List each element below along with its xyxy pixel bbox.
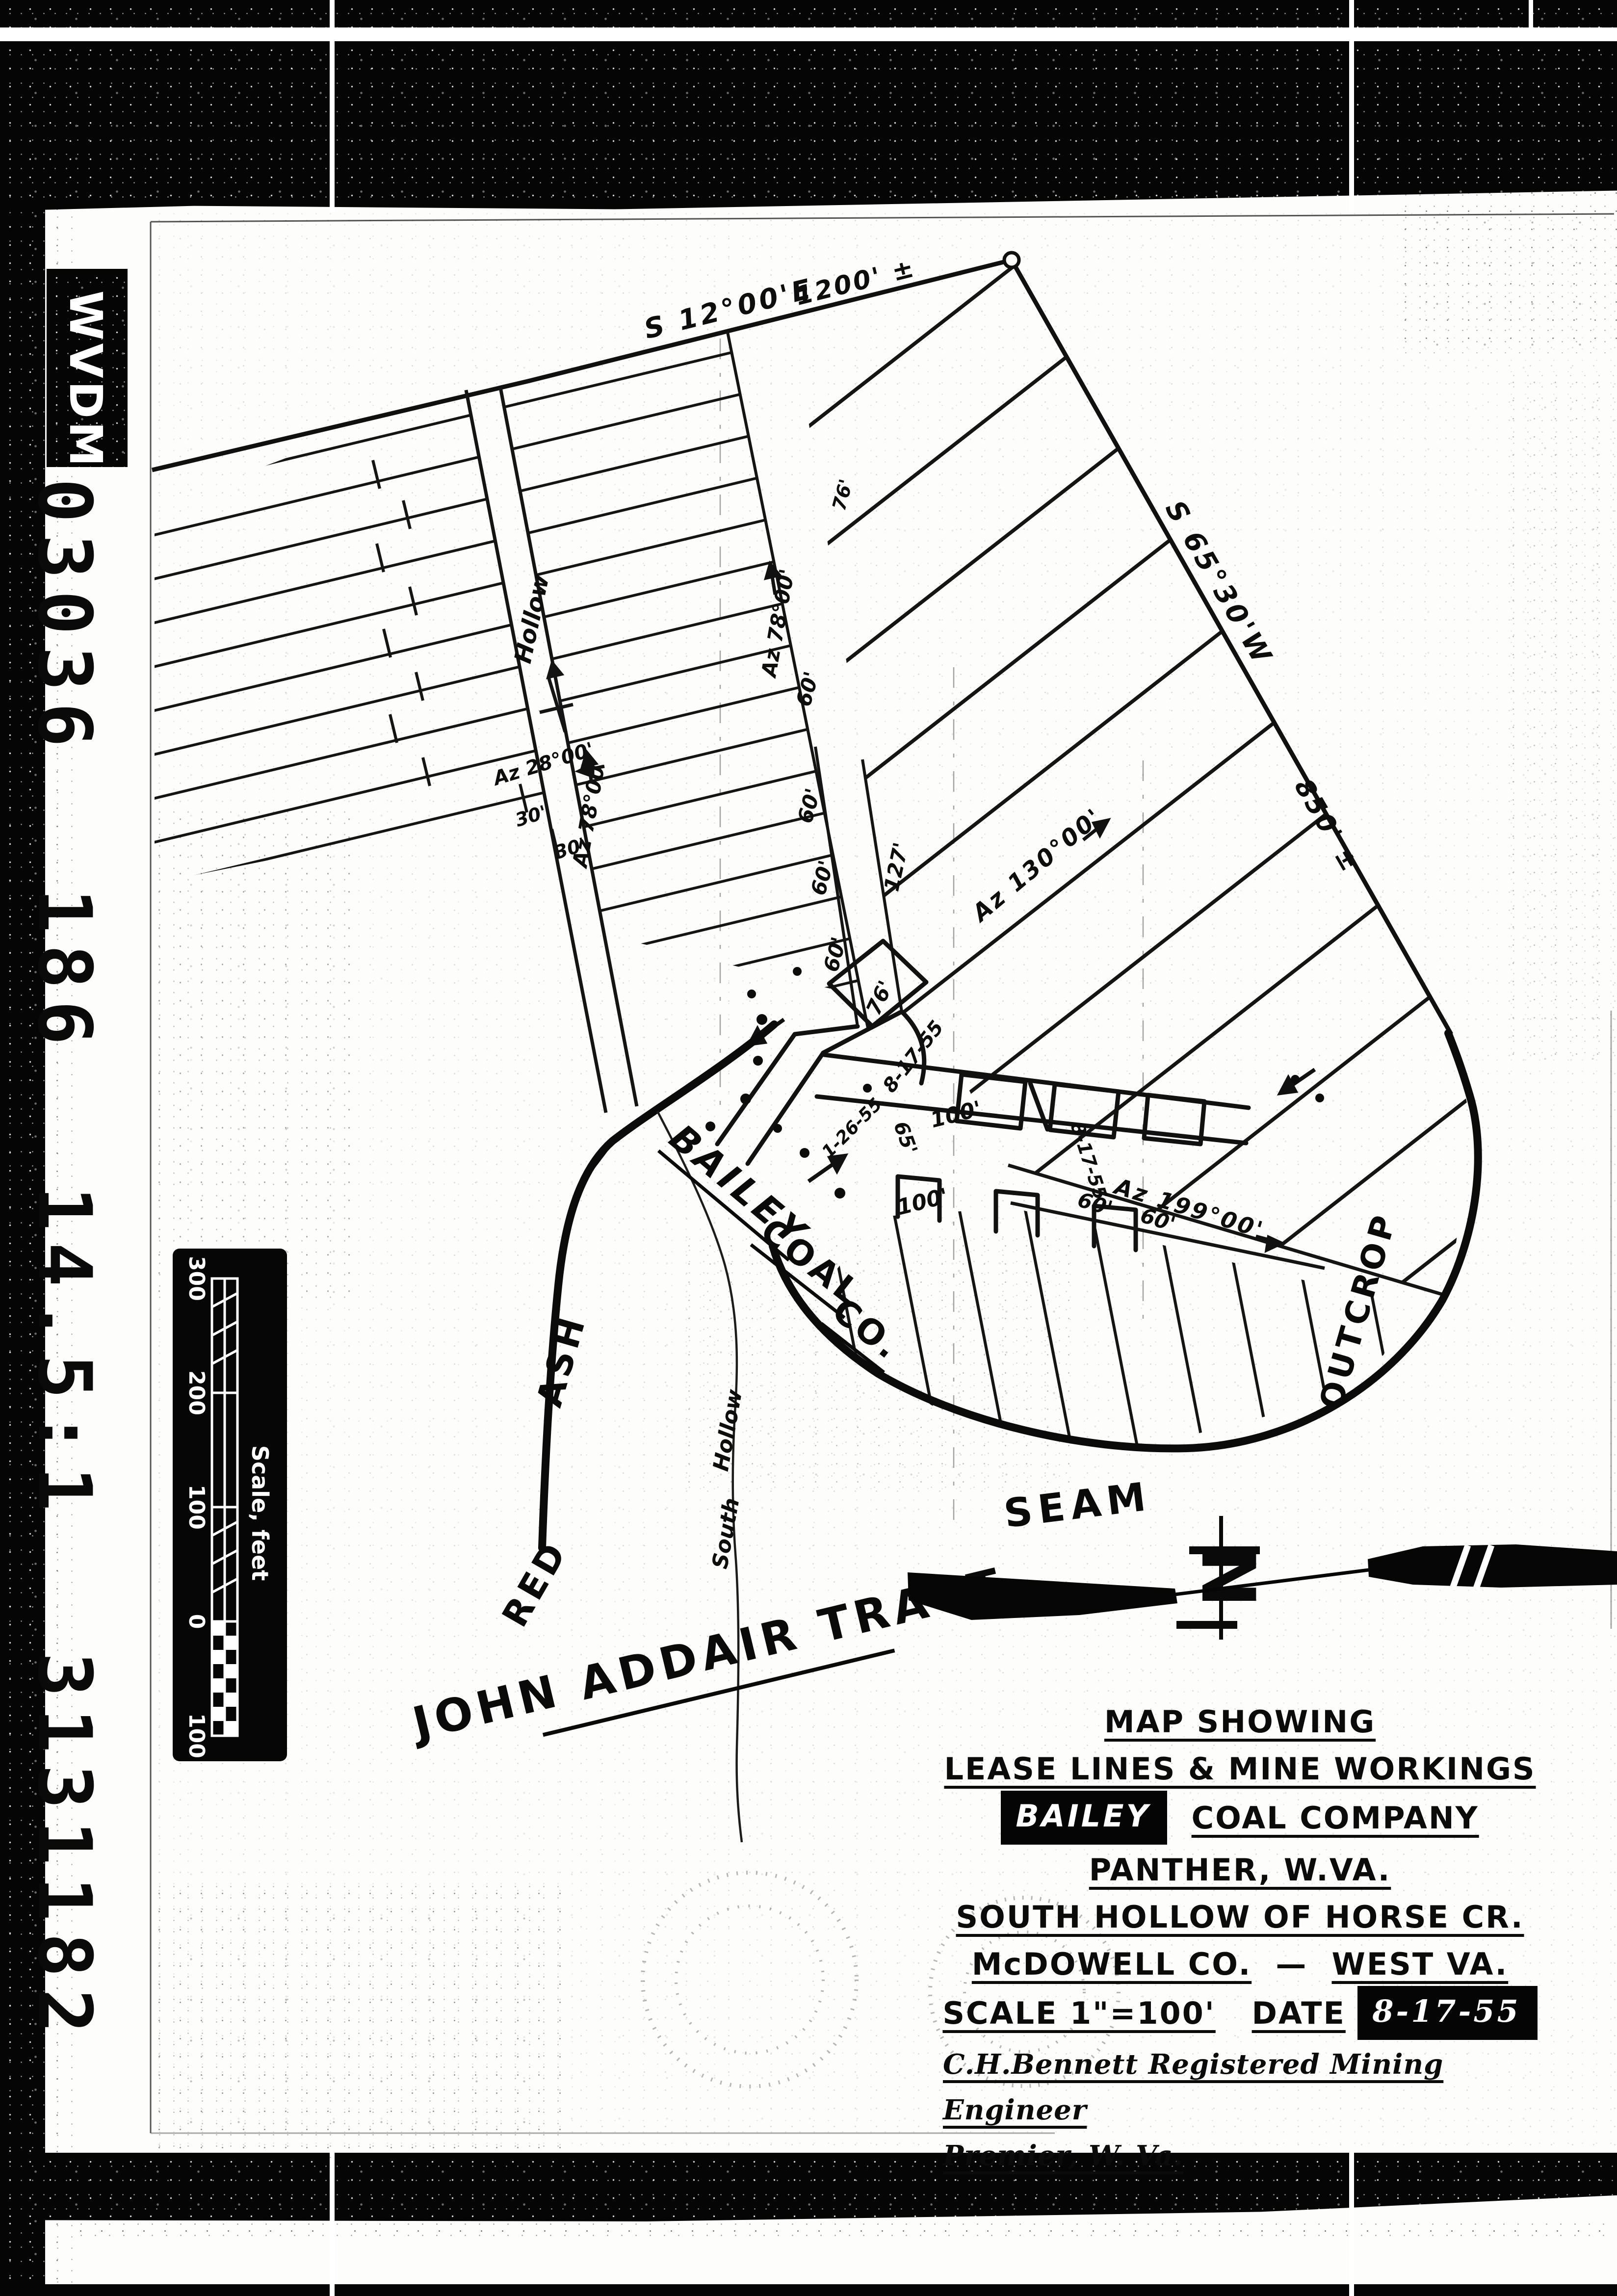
stream-label-south: South bbox=[707, 1496, 745, 1570]
fan-strips-left bbox=[155, 390, 546, 883]
title-line-5: SOUTH HOLLOW OF HORSE CR. bbox=[913, 1894, 1567, 1941]
title-block: MAP SHOWING LEASE LINES & MINE WORKINGS … bbox=[913, 1698, 1567, 2179]
scale-tick-0: 0 bbox=[184, 1614, 209, 1629]
title-west-va: WEST VA. bbox=[1331, 1946, 1508, 1982]
title-scale: SCALE 1"=100' bbox=[942, 1995, 1215, 2031]
engineer-signature: C.H.Bennett Registered Mining Engineer bbox=[943, 2048, 1443, 2126]
scale-tick-200: 200 bbox=[184, 1370, 209, 1415]
company-name-boxed: BAILEY bbox=[1001, 1791, 1167, 1845]
stream-label-hollow: Hollow bbox=[708, 1387, 747, 1473]
title-mcdowell: McDOWELL CO. bbox=[972, 1946, 1252, 1982]
seam-label: SEAM bbox=[1001, 1473, 1154, 1537]
title-map-showing: MAP SHOWING bbox=[1104, 1704, 1376, 1740]
scale-tick-300: 300 bbox=[184, 1256, 209, 1301]
title-line-2: LEASE LINES & MINE WORKINGS bbox=[913, 1746, 1567, 1793]
title-line-1: MAP SHOWING bbox=[913, 1698, 1567, 1746]
title-line-6: McDOWELL CO. — WEST VA. bbox=[913, 1941, 1567, 1988]
scale-bar: 300 200 100 0 100 Scale, feet bbox=[173, 1249, 287, 1761]
scale-caption: Scale, feet bbox=[247, 1445, 273, 1581]
scale-tick-b100: 100 bbox=[184, 1713, 209, 1758]
seam-word-red: RED bbox=[494, 1533, 576, 1634]
north-letter: N bbox=[1185, 1546, 1270, 1608]
title-coal-company: COAL COMPANY bbox=[1192, 1800, 1479, 1836]
title-line-4: PANTHER, W.VA. bbox=[913, 1847, 1567, 1894]
title-lease-lines: LEASE LINES & MINE WORKINGS bbox=[944, 1751, 1536, 1787]
engineer-address: Premier, W. Va. bbox=[943, 2139, 1183, 2172]
title-date-boxed: 8-17-55 bbox=[1357, 1986, 1537, 2040]
dim65: 65' bbox=[889, 1119, 921, 1158]
title-line-8: C.H.Bennett Registered Mining Engineer bbox=[913, 2042, 1567, 2133]
scale-tick-100: 100 bbox=[184, 1485, 209, 1530]
microfilm-frame: WVDM 03036 186 14.5:1 3131182 bbox=[0, 0, 1617, 2296]
corner-monument bbox=[1004, 253, 1019, 267]
title-date-label: DATE bbox=[1252, 1995, 1346, 2031]
title-panther: PANTHER, W.VA. bbox=[1089, 1852, 1391, 1888]
seam-word-ash: ASH bbox=[528, 1309, 594, 1411]
title-line-9: Premier, W. Va. bbox=[913, 2133, 1567, 2179]
title-line-7: SCALE 1"=100' DATE 8-17-55 bbox=[913, 1988, 1567, 2042]
title-line-3: BAILEY COAL COMPANY bbox=[913, 1793, 1567, 1847]
north-arrow: N bbox=[1176, 1516, 1270, 1640]
stream-line bbox=[657, 1111, 742, 1842]
face-date-3: 1-26-55 bbox=[818, 1095, 887, 1163]
title-dash: — bbox=[1276, 1946, 1307, 1982]
title-south-hollow: SOUTH HOLLOW OF HORSE CR. bbox=[956, 1899, 1524, 1935]
dim100-1: 100' bbox=[928, 1096, 984, 1133]
